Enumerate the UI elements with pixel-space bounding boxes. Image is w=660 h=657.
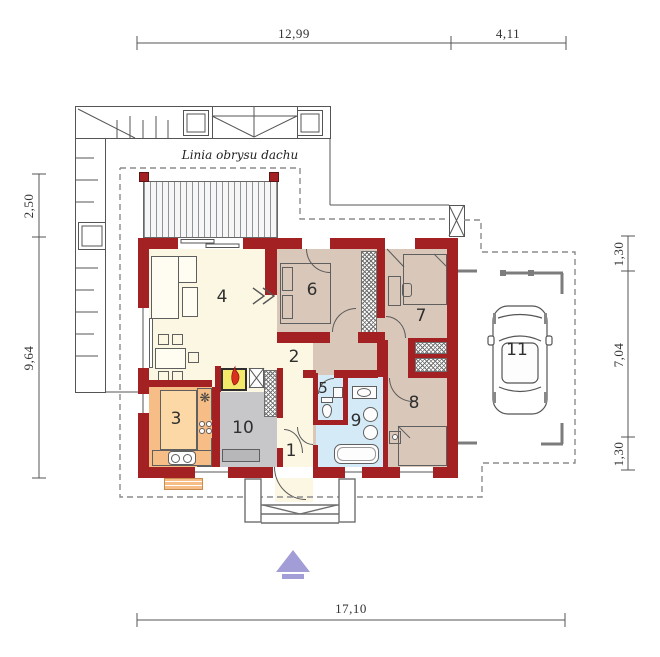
carport-bracket — [528, 270, 534, 276]
dim-left-1: 2,50 — [21, 178, 37, 234]
roof-outline-label: Linia obrysu dachu — [175, 148, 305, 162]
room-label-9: 9 — [340, 411, 372, 431]
dim-right-1: 1,30 — [611, 226, 627, 282]
entrance-arrow-icon — [276, 550, 310, 572]
car — [488, 306, 552, 414]
entrance-arrow-bar — [282, 574, 304, 579]
room-label-7: 7 — [405, 306, 437, 326]
room-label-5: 5 — [307, 379, 339, 397]
dim-left-2: 9,64 — [21, 330, 37, 386]
dim-right-3: 1,30 — [611, 426, 627, 482]
double-door-symbol — [253, 288, 274, 304]
room-label-3: 3 — [160, 409, 192, 429]
floor-plan: ❋ — [0, 0, 660, 657]
dim-bottom: 17,10 — [323, 601, 379, 617]
flame-icon — [232, 367, 239, 385]
entry-porch — [245, 479, 355, 523]
room-label-10: 10 — [227, 418, 259, 438]
room-label-1: 1 — [275, 441, 307, 461]
dim-top-2: 4,11 — [480, 26, 536, 42]
room-label-2: 2 — [278, 347, 310, 367]
dim-right-2: 7,04 — [611, 327, 627, 383]
room-label-8: 8 — [398, 393, 430, 413]
carport-bracket — [500, 270, 506, 276]
chimney — [449, 205, 465, 237]
sliding-door — [181, 240, 239, 248]
room-label-11: 11 — [501, 340, 533, 360]
plan-linework — [0, 0, 660, 657]
room-label-6: 6 — [296, 280, 328, 300]
dim-top-1: 12,99 — [266, 26, 322, 42]
room-label-4: 4 — [206, 287, 238, 307]
vent-shaft-x — [249, 368, 264, 388]
